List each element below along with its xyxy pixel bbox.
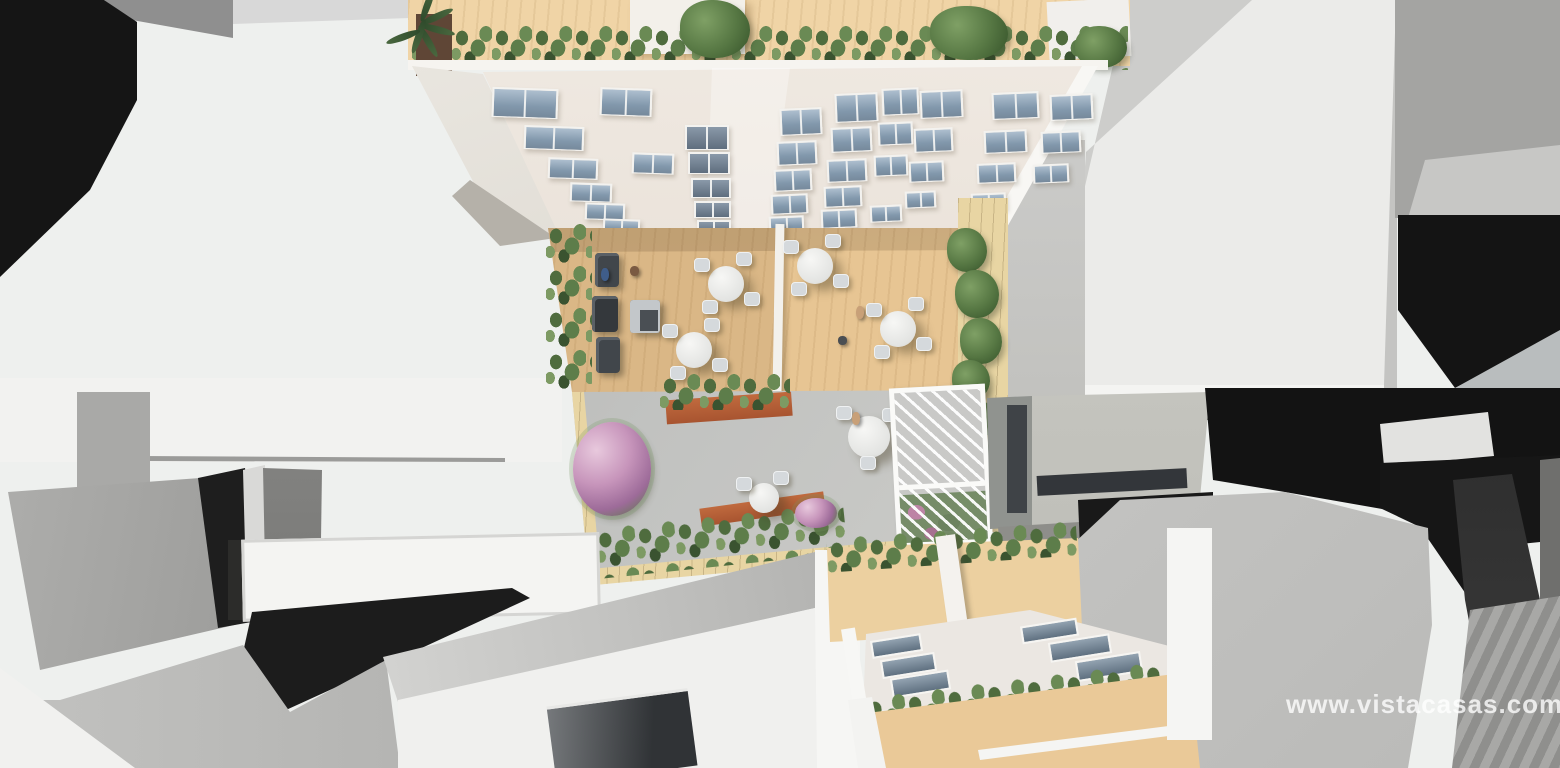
chair — [860, 456, 876, 470]
watermark: www.vistacasas.com — [1286, 689, 1560, 720]
window — [834, 92, 878, 123]
chair — [908, 297, 924, 311]
chair — [694, 258, 710, 272]
ottoman — [592, 296, 618, 332]
sofa — [596, 337, 620, 373]
window — [909, 160, 945, 183]
terrace-tree — [947, 228, 987, 272]
chair — [791, 282, 807, 296]
window — [984, 129, 1028, 154]
table — [797, 248, 833, 284]
window — [491, 87, 558, 119]
chair — [702, 300, 718, 314]
window — [919, 89, 963, 119]
window — [691, 178, 731, 198]
chair — [836, 406, 852, 420]
coffee-table — [630, 300, 660, 333]
window — [874, 154, 909, 176]
terrace-tree — [955, 270, 999, 318]
person — [838, 336, 847, 345]
window — [779, 107, 822, 136]
chair — [736, 477, 752, 491]
rooftop-tree — [930, 6, 1008, 60]
terrace-hedge — [546, 222, 592, 394]
chair — [712, 358, 728, 372]
window — [830, 126, 872, 153]
window — [548, 157, 599, 180]
rooftop-tree — [680, 0, 750, 58]
chair — [704, 318, 720, 332]
window — [1049, 93, 1093, 121]
window — [771, 193, 809, 215]
table — [749, 483, 779, 513]
terrace-tree — [960, 318, 1002, 364]
flower-bush — [795, 498, 837, 528]
chair — [783, 240, 799, 254]
table — [676, 332, 712, 368]
window — [870, 204, 903, 222]
flower-bush — [573, 422, 651, 516]
chair — [825, 234, 841, 248]
window — [827, 158, 868, 183]
chair — [916, 337, 932, 351]
planter-bushes — [660, 372, 790, 410]
window — [632, 152, 675, 174]
gray-facade-slot — [1007, 405, 1027, 513]
window — [524, 125, 585, 151]
window — [977, 162, 1017, 184]
table — [708, 266, 744, 302]
chair — [866, 303, 882, 317]
window — [774, 168, 813, 192]
window — [821, 208, 858, 229]
table — [880, 311, 916, 347]
window — [694, 201, 731, 218]
chair — [744, 292, 760, 306]
building-right-wall — [1167, 528, 1212, 740]
chair — [736, 252, 752, 266]
window — [905, 190, 937, 208]
palm-tree — [402, 2, 472, 62]
window — [688, 152, 730, 174]
window — [776, 140, 817, 166]
window — [913, 127, 953, 153]
window — [824, 185, 863, 208]
person — [856, 306, 864, 319]
massing-gray-block — [77, 392, 150, 490]
window — [1033, 163, 1070, 184]
person — [630, 266, 639, 276]
window — [685, 125, 729, 150]
person — [852, 412, 860, 425]
window — [570, 182, 613, 202]
chair — [662, 324, 678, 338]
window — [600, 87, 653, 117]
chair — [773, 471, 789, 485]
window — [1041, 130, 1082, 154]
person — [601, 268, 609, 281]
window — [881, 87, 919, 116]
window — [991, 91, 1039, 120]
pergola-lattice — [894, 389, 988, 543]
aerial-render: www.vistacasas.com — [0, 0, 1560, 768]
chair — [874, 345, 890, 359]
chair — [833, 274, 849, 288]
pergola — [889, 384, 993, 549]
window — [878, 121, 914, 146]
